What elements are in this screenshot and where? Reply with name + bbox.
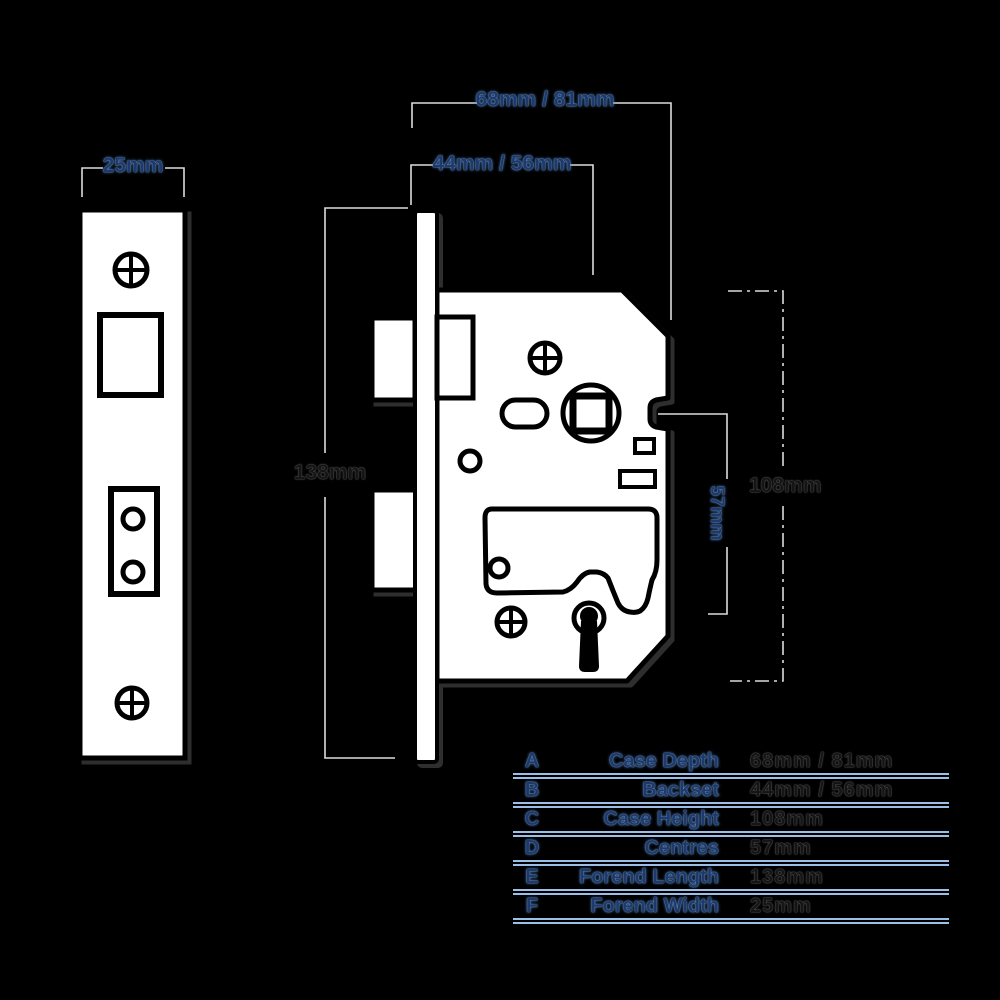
- spindle-slot: [502, 400, 547, 427]
- case-top-screw: [528, 341, 562, 375]
- spec-row-b: B Backset 44mm / 56mm: [513, 779, 949, 802]
- spec-letter: D: [513, 837, 551, 860]
- spec-name: Forend Width: [551, 895, 719, 918]
- bolt-hole-top: [123, 509, 143, 529]
- spec-value: 25mm: [719, 895, 949, 918]
- case-bottom-screw: [495, 606, 527, 638]
- bolt-hole-bottom: [123, 562, 143, 582]
- forend-plate-front-view: [80, 210, 185, 758]
- dim-label-backset: 44mm / 56mm: [412, 152, 592, 176]
- dim-label-forend-width: 25mm: [80, 154, 186, 178]
- spec-value: 68mm / 81mm: [719, 750, 949, 773]
- deadbolt-head: [372, 490, 420, 590]
- spec-name: Case Depth: [551, 750, 719, 773]
- spec-value: 44mm / 56mm: [719, 779, 949, 802]
- forend-strip-side: [415, 211, 437, 762]
- small-square-detail: [635, 439, 654, 453]
- spec-table: A Case Depth 68mm / 81mm B Backset 44mm …: [513, 750, 949, 924]
- spec-letter: A: [513, 750, 551, 773]
- spec-name: Backset: [551, 779, 719, 802]
- spec-value: 57mm: [719, 837, 949, 860]
- spec-name: Forend Length: [551, 866, 719, 889]
- spec-name: Case Height: [551, 808, 719, 831]
- spec-value: 138mm: [719, 866, 949, 889]
- spec-row-e: E Forend Length 138mm: [513, 866, 949, 889]
- dim-case-height-line-top: [728, 291, 783, 468]
- dim-case-height-line-bottom: [730, 506, 783, 681]
- dim-centres-line-bottom: [708, 547, 727, 614]
- forend-bottom-screw: [115, 686, 149, 720]
- spec-row-divider: [513, 918, 949, 924]
- dim-case-depth-line-right: [612, 103, 671, 320]
- small-rect-detail: [620, 471, 655, 487]
- dim-label-forend-length: 138mm: [288, 461, 372, 485]
- spec-letter: E: [513, 866, 551, 889]
- lock-case-side-view: [372, 211, 668, 762]
- lock-dimension-diagram: 25mm 68mm / 81mm 44mm / 56mm 138mm 108mm…: [0, 0, 1000, 1000]
- latch-bolt-body: [437, 317, 473, 398]
- dim-label-centres: 57mm: [705, 486, 727, 541]
- spec-row-c: C Case Height 108mm: [513, 808, 949, 831]
- dim-label-case-height: 108mm: [749, 474, 821, 498]
- latch-opening: [100, 315, 161, 395]
- spec-letter: C: [513, 808, 551, 831]
- forend-top-screw: [113, 252, 149, 288]
- dim-backset-line-right: [568, 165, 593, 275]
- latch-bolt-head: [372, 318, 415, 400]
- spec-row-f: F Forend Width 25mm: [513, 895, 949, 918]
- spec-row-a: A Case Depth 68mm / 81mm: [513, 750, 949, 773]
- dim-label-case-depth: 68mm / 81mm: [455, 88, 635, 112]
- keyhole-stem: [579, 621, 599, 672]
- spindle-square-hole: [573, 396, 609, 431]
- spec-name: Centres: [551, 837, 719, 860]
- spec-row-d: D Centres 57mm: [513, 837, 949, 860]
- lever-pivot-hole: [490, 559, 508, 577]
- spec-letter: F: [513, 895, 551, 918]
- fixing-hole: [460, 451, 480, 471]
- spec-letter: B: [513, 779, 551, 802]
- forend-plate: [80, 210, 185, 758]
- spec-value: 108mm: [719, 808, 949, 831]
